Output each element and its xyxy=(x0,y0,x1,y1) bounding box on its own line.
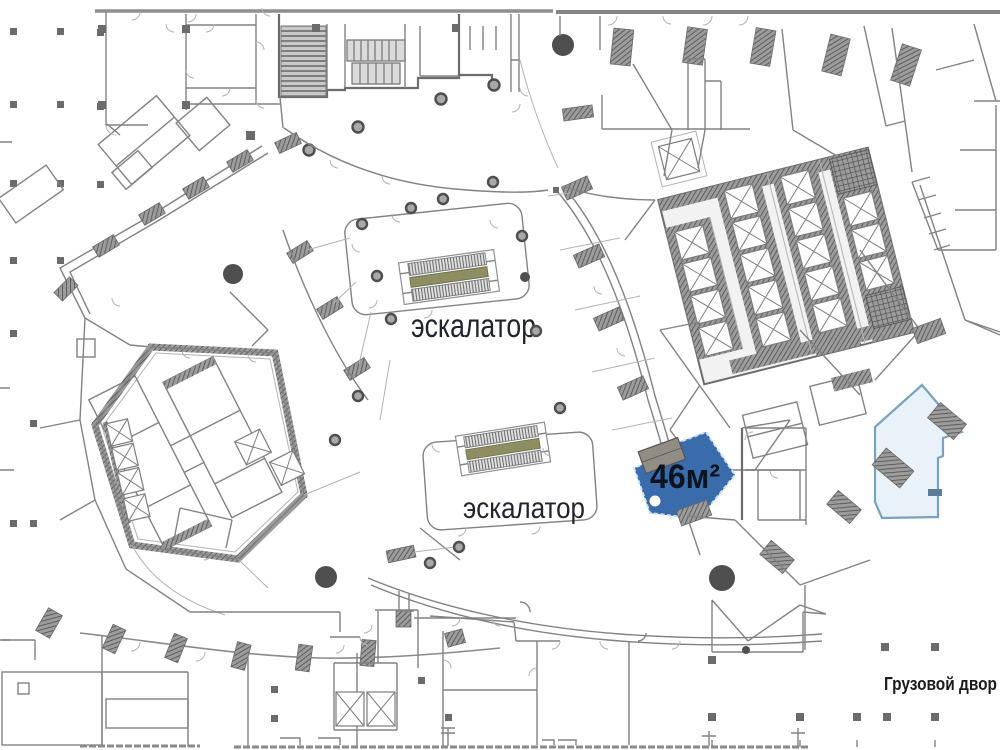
svg-text:46м²: 46м² xyxy=(650,458,720,496)
svg-text:эскалатор: эскалатор xyxy=(411,307,536,344)
svg-text:Грузовой двор: Грузовой двор xyxy=(884,674,997,694)
svg-text:эскалатор: эскалатор xyxy=(463,492,585,525)
